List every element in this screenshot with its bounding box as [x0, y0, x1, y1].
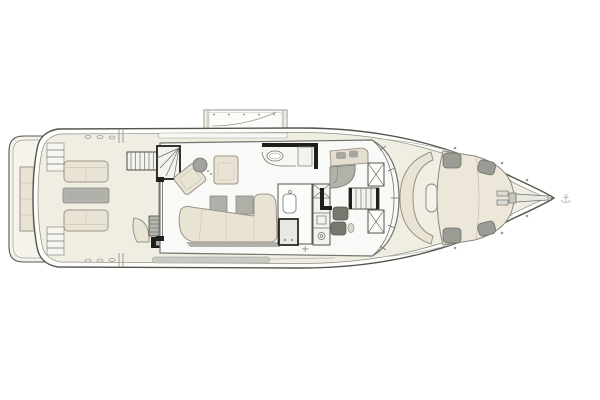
deck-cross-mark: +: [301, 244, 309, 255]
yacht-deck-plan: ⚓ +: [0, 0, 600, 400]
day-head-door: [298, 147, 312, 166]
companionway-stairs: [349, 188, 379, 209]
sunpad-headrest-2: [443, 228, 461, 243]
hatch-box-1: [368, 163, 384, 186]
galley-side-table: [348, 224, 354, 233]
galley-sink: [283, 194, 296, 213]
coffee-table-2: [236, 196, 253, 214]
hatch-box-2: [368, 210, 384, 233]
galley-stool-2: [331, 222, 346, 235]
walkway-strip-bottom: [152, 257, 270, 263]
day-head: [262, 143, 318, 169]
deck-plan-drawing: ⚓ +: [0, 0, 600, 400]
helm-console: [330, 148, 368, 166]
galley-stool-1: [333, 207, 348, 220]
anchor-icon: ⚓: [560, 192, 572, 207]
foredeck-table: [426, 184, 437, 212]
sofa-base: [186, 242, 280, 247]
salon-side-table: [193, 158, 207, 172]
salon-armchair: [214, 156, 238, 184]
side-rail-top: [158, 133, 288, 138]
sunpad-headrest-1: [443, 153, 461, 168]
galley-cabinet: [279, 219, 298, 245]
